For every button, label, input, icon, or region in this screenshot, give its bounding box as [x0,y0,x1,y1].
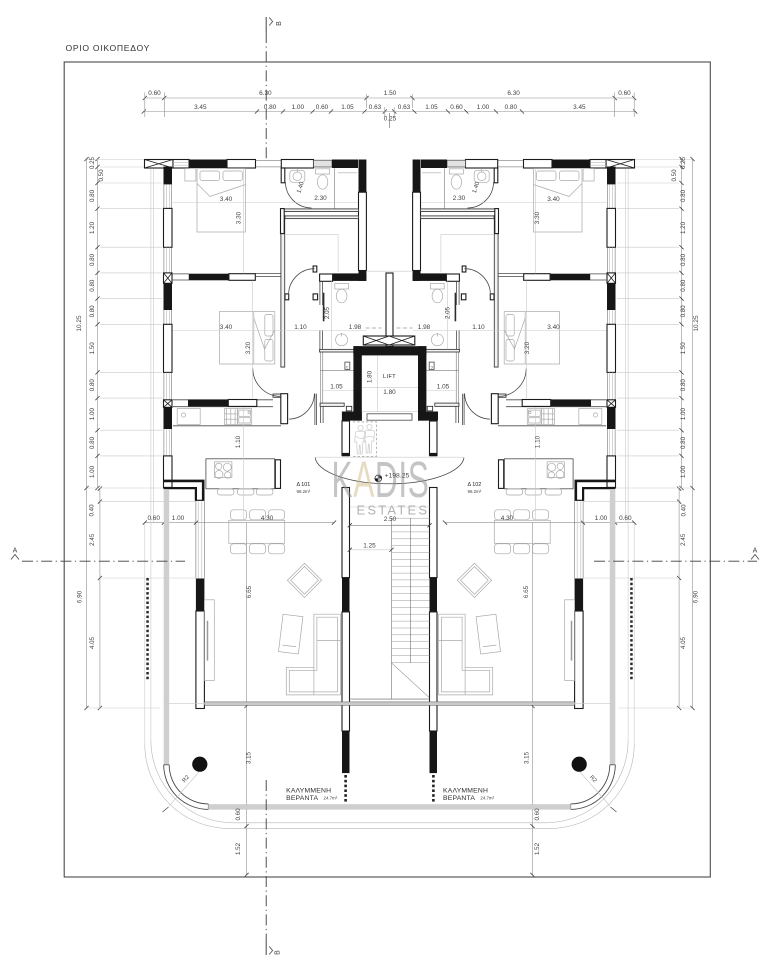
svg-text:1.00: 1.00 [292,104,305,111]
svg-text:0.80: 0.80 [680,279,687,292]
svg-text:1.00: 1.00 [477,104,490,111]
svg-text:0.80: 0.80 [89,253,96,266]
svg-text:A: A [13,548,18,555]
svg-text:3.15: 3.15 [246,751,253,764]
svg-text:1.80: 1.80 [383,389,396,396]
svg-text:24.7m²: 24.7m² [324,796,338,801]
svg-text:1.05: 1.05 [437,384,450,391]
svg-text:0.60: 0.60 [148,90,161,97]
svg-text:1.00: 1.00 [172,515,185,522]
svg-text:2.30: 2.30 [314,195,327,202]
svg-text:3.40: 3.40 [220,324,233,331]
svg-text:1.00: 1.00 [680,408,687,421]
svg-text:0.60: 0.60 [450,104,463,111]
svg-text:1.00: 1.00 [89,465,96,478]
svg-text:98.2m²: 98.2m² [468,489,482,494]
svg-text:ΒΕΡΑΝΤΑ: ΒΕΡΑΝΤΑ [286,795,318,802]
svg-text:0.25: 0.25 [384,116,397,123]
svg-text:2.50: 2.50 [384,516,397,523]
svg-text:1.05: 1.05 [341,104,354,111]
svg-text:1.50: 1.50 [384,90,397,97]
svg-text:6.90: 6.90 [77,590,84,603]
svg-text:2.30: 2.30 [453,195,466,202]
svg-text:3.30: 3.30 [534,211,541,224]
svg-text:3.40: 3.40 [547,324,560,331]
svg-text:6.30: 6.30 [259,90,272,97]
svg-text:1.10: 1.10 [535,435,542,448]
svg-text:ΚΑΛΥΜΜΕΝΗ: ΚΑΛΥΜΜΕΝΗ [443,787,488,794]
svg-text:1.05: 1.05 [330,384,343,391]
svg-text:1.98: 1.98 [349,324,362,331]
svg-text:B: B [275,950,282,955]
svg-text:1.52: 1.52 [235,842,242,855]
svg-text:1.20: 1.20 [89,221,96,234]
svg-text:0.60: 0.60 [619,515,632,522]
svg-text:1.00: 1.00 [680,465,687,478]
svg-text:ΚΑΛΥΜΜΕΝΗ: ΚΑΛΥΜΜΕΝΗ [286,787,331,794]
svg-text:2.45: 2.45 [89,533,96,546]
svg-text:10.25: 10.25 [693,315,700,331]
svg-text:ΟΡΙΟ ΟΙΚΟΠΕΔΟΥ: ΟΡΙΟ ΟΙΚΟΠΕΔΟΥ [66,43,151,53]
svg-text:24.7m²: 24.7m² [480,796,494,801]
svg-text:0.60: 0.60 [147,515,160,522]
svg-text:0.60: 0.60 [534,808,541,821]
svg-text:98.2m²: 98.2m² [297,489,311,494]
svg-text:0.80: 0.80 [505,104,518,111]
svg-text:1.52: 1.52 [534,842,541,855]
svg-text:6.65: 6.65 [523,585,530,598]
svg-text:0.60: 0.60 [235,808,242,821]
svg-text:4.30: 4.30 [261,515,274,522]
svg-text:1.05: 1.05 [425,104,438,111]
svg-text:0.80: 0.80 [680,379,687,392]
svg-text:KADIS: KADIS [332,451,430,507]
svg-text:3.30: 3.30 [236,211,243,224]
svg-text:0.25: 0.25 [89,156,96,169]
svg-text:3.20: 3.20 [245,341,252,354]
svg-text:0.80: 0.80 [89,189,96,202]
svg-text:1.00: 1.00 [595,515,608,522]
svg-text:10.25: 10.25 [76,315,83,331]
svg-text:0.40: 0.40 [89,504,96,517]
svg-text:1.20: 1.20 [680,221,687,234]
svg-text:Δ 102: Δ 102 [468,482,482,488]
svg-text:1.50: 1.50 [680,342,687,355]
svg-text:3.40: 3.40 [220,196,233,203]
svg-text:0.80: 0.80 [89,436,96,449]
svg-text:4.30: 4.30 [501,515,514,522]
svg-text:1.98: 1.98 [418,324,431,331]
svg-text:1.25: 1.25 [363,543,376,550]
svg-text:1.80: 1.80 [367,370,374,383]
svg-text:1.00: 1.00 [89,408,96,421]
svg-text:0.80: 0.80 [264,104,277,111]
svg-text:0.80: 0.80 [680,305,687,318]
svg-text:0.80: 0.80 [680,253,687,266]
svg-text:0.40: 0.40 [681,504,688,517]
svg-text:+198.25: +198.25 [385,473,410,480]
svg-text:1.50: 1.50 [89,342,96,355]
svg-text:2.05: 2.05 [445,306,452,319]
svg-text:0.50: 0.50 [98,169,105,182]
svg-text:ΒΕΡΑΝΤΑ: ΒΕΡΑΝΤΑ [443,795,475,802]
svg-text:2.05: 2.05 [324,306,331,319]
svg-text:0.60: 0.60 [618,90,631,97]
svg-text:0.50: 0.50 [671,169,678,182]
svg-text:3.45: 3.45 [194,104,207,111]
svg-text:3.20: 3.20 [524,341,531,354]
svg-text:0.80: 0.80 [89,379,96,392]
svg-text:1.10: 1.10 [235,435,242,448]
svg-text:6.65: 6.65 [246,585,253,598]
svg-text:c: c [346,364,348,369]
svg-text:0.80: 0.80 [680,436,687,449]
svg-text:0.80: 0.80 [89,279,96,292]
svg-text:4.05: 4.05 [680,636,687,649]
svg-text:0.60: 0.60 [316,104,329,111]
svg-text:3.45: 3.45 [573,104,586,111]
svg-text:6.30: 6.30 [507,90,520,97]
svg-text:3.15: 3.15 [524,751,531,764]
svg-text:0.80: 0.80 [89,305,96,318]
svg-text:0.80: 0.80 [680,189,687,202]
svg-text:B: B [276,21,283,26]
svg-text:Δ 101: Δ 101 [297,482,311,488]
svg-text:4.05: 4.05 [89,636,96,649]
svg-text:A: A [753,548,758,555]
svg-text:6.90: 6.90 [692,590,699,603]
svg-text:2.45: 2.45 [680,533,687,546]
svg-text:1.10: 1.10 [294,324,307,331]
svg-text:3.40: 3.40 [547,196,560,203]
svg-text:1.10: 1.10 [472,324,485,331]
svg-text:0.63: 0.63 [369,104,382,111]
svg-text:0.63: 0.63 [398,104,411,111]
svg-text:LIFT: LIFT [383,374,396,380]
svg-text:0.25: 0.25 [680,156,687,169]
